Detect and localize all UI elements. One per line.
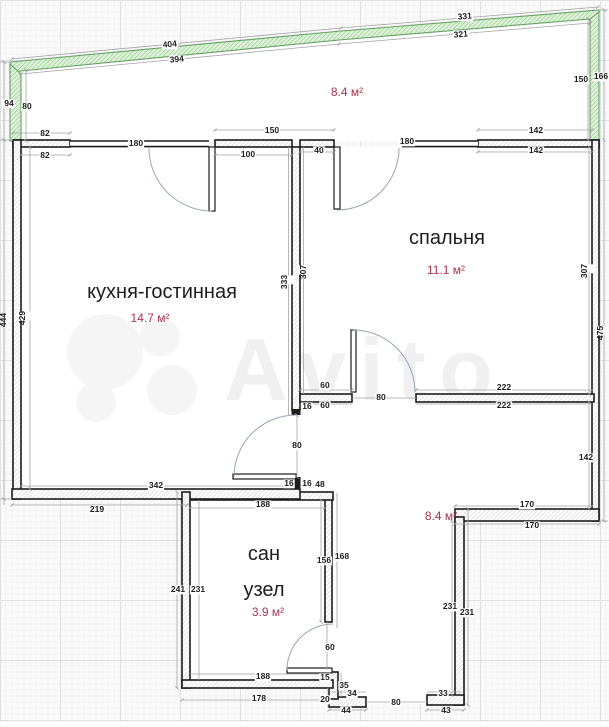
svg-text:142: 142: [529, 125, 543, 135]
svg-text:44: 44: [341, 705, 351, 715]
svg-text:100: 100: [241, 149, 255, 159]
svg-text:475: 475: [595, 326, 605, 340]
svg-text:231: 231: [443, 601, 457, 611]
svg-text:11.1 м²: 11.1 м²: [427, 263, 465, 277]
svg-text:14.7 м²: 14.7 м²: [131, 311, 170, 325]
svg-text:188: 188: [256, 499, 270, 509]
svg-text:188: 188: [256, 671, 270, 681]
svg-text:20: 20: [320, 694, 330, 704]
svg-text:80: 80: [22, 101, 32, 111]
svg-text:231: 231: [191, 584, 205, 594]
svg-text:321: 321: [453, 28, 468, 39]
svg-text:82: 82: [40, 128, 50, 138]
svg-text:307: 307: [298, 265, 308, 279]
svg-text:16: 16: [302, 401, 312, 411]
svg-text:150: 150: [265, 125, 279, 135]
svg-text:34: 34: [347, 688, 357, 698]
svg-text:219: 219: [90, 504, 104, 514]
svg-text:60: 60: [320, 380, 330, 390]
svg-text:142: 142: [529, 145, 543, 155]
svg-text:3.9 м²: 3.9 м²: [252, 605, 284, 619]
svg-text:15: 15: [320, 672, 330, 682]
svg-text:узел: узел: [243, 579, 284, 601]
svg-text:48: 48: [315, 479, 325, 489]
svg-text:222: 222: [497, 382, 511, 392]
svg-text:170: 170: [520, 499, 534, 509]
svg-text:94: 94: [4, 98, 14, 108]
svg-text:404: 404: [162, 38, 177, 49]
svg-text:сан: сан: [248, 543, 280, 565]
svg-text:342: 342: [149, 480, 163, 490]
svg-text:156: 156: [317, 555, 331, 565]
svg-text:8.4 м²: 8.4 м²: [331, 85, 363, 99]
svg-text:394: 394: [169, 53, 184, 64]
svg-text:429: 429: [17, 311, 27, 325]
svg-text:43: 43: [441, 705, 451, 715]
svg-text:166: 166: [594, 71, 608, 81]
svg-text:80: 80: [391, 697, 401, 707]
svg-text:60: 60: [320, 400, 330, 410]
svg-text:331: 331: [457, 10, 472, 21]
svg-text:170: 170: [525, 520, 539, 530]
svg-text:307: 307: [579, 264, 589, 278]
svg-text:кухня-гостинная: кухня-гостинная: [87, 281, 237, 303]
svg-text:222: 222: [497, 400, 511, 410]
svg-text:80: 80: [376, 392, 386, 402]
svg-text:80: 80: [292, 440, 302, 450]
svg-text:16: 16: [284, 478, 294, 488]
svg-text:231: 231: [460, 607, 474, 617]
svg-text:16: 16: [302, 478, 312, 488]
svg-text:спальня: спальня: [409, 227, 485, 249]
svg-text:142: 142: [579, 452, 593, 462]
svg-text:33: 33: [438, 688, 448, 698]
svg-text:8.4 м²: 8.4 м²: [425, 509, 457, 523]
svg-text:180: 180: [400, 136, 414, 146]
svg-text:241: 241: [171, 584, 185, 594]
svg-text:444: 444: [0, 313, 8, 327]
svg-text:82: 82: [40, 150, 50, 160]
svg-text:180: 180: [129, 138, 143, 148]
svg-text:178: 178: [252, 693, 266, 703]
svg-text:40: 40: [314, 145, 324, 155]
svg-text:333: 333: [279, 275, 289, 289]
svg-text:168: 168: [335, 551, 349, 561]
svg-text:150: 150: [574, 74, 588, 84]
svg-text:60: 60: [325, 642, 335, 652]
